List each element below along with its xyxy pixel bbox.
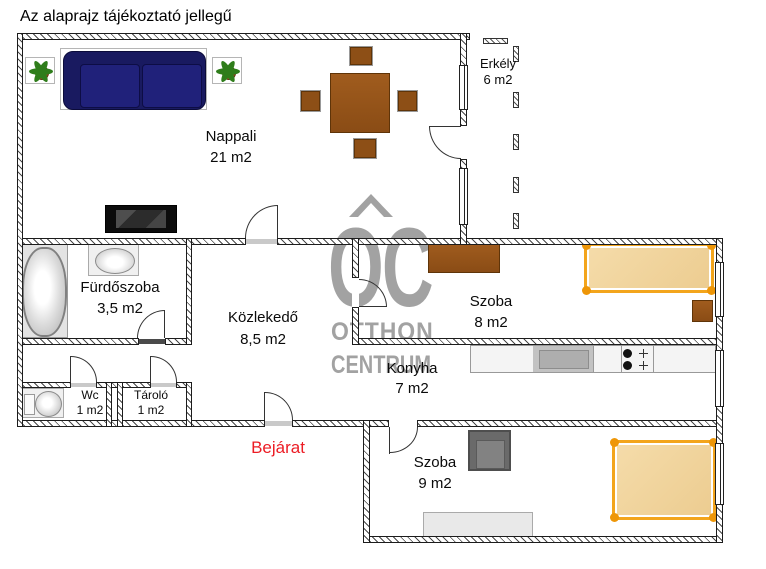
room-area: 1 m2 bbox=[121, 403, 181, 418]
door-arc bbox=[245, 205, 278, 238]
door-threshold bbox=[265, 421, 292, 426]
room-name: Tároló bbox=[121, 388, 181, 403]
door-arc bbox=[429, 126, 461, 159]
wall-segment bbox=[17, 33, 23, 427]
tv bbox=[105, 205, 177, 233]
toilet-tank bbox=[24, 394, 35, 415]
door-arc bbox=[151, 356, 177, 382]
sofa bbox=[60, 48, 207, 110]
wall-segment bbox=[363, 536, 723, 543]
window bbox=[715, 262, 724, 317]
door-threshold bbox=[246, 239, 277, 244]
kitchen-counter bbox=[470, 345, 716, 373]
room-area: 9 m2 bbox=[375, 473, 495, 494]
plan-disclaimer-title: Az alaprajz tájékoztató jellegű bbox=[20, 8, 232, 26]
stove-burner-icon bbox=[639, 361, 648, 370]
door-leaf bbox=[264, 392, 265, 420]
floor-plan: Az alaprajz tájékoztató jellegű OC OTTHO… bbox=[0, 0, 766, 569]
stove-burner bbox=[623, 349, 632, 358]
room-label-szoba-8: Szoba 8 m2 bbox=[431, 291, 551, 333]
room-name: Közlekedő bbox=[203, 307, 323, 329]
window bbox=[715, 443, 724, 505]
stove-burner bbox=[623, 361, 632, 370]
wall-segment bbox=[186, 238, 192, 345]
kitchen-sink bbox=[533, 346, 593, 372]
wall-segment bbox=[363, 420, 370, 543]
room-name: Wc bbox=[60, 388, 120, 403]
counter-divider bbox=[593, 346, 594, 372]
door-arc bbox=[265, 392, 293, 420]
sofa-cushion bbox=[80, 64, 140, 108]
room-name: Fürdőszoba bbox=[60, 277, 180, 298]
door-leaf bbox=[277, 205, 278, 238]
stove-burner-icon bbox=[639, 349, 648, 358]
room-label-erkely: Erkély 6 m2 bbox=[438, 56, 558, 88]
chair bbox=[353, 138, 377, 159]
room-label-tarolo: Tároló 1 m2 bbox=[121, 388, 181, 418]
bed-corner bbox=[582, 286, 591, 295]
window bbox=[459, 168, 468, 225]
room-label-konyha: Konyha 7 m2 bbox=[352, 359, 472, 399]
wall-segment bbox=[186, 382, 192, 427]
door-opening bbox=[388, 420, 418, 427]
room-label-szoba-9: Szoba 9 m2 bbox=[375, 452, 495, 494]
window bbox=[715, 350, 724, 407]
chair bbox=[397, 90, 418, 112]
room-area: 1 m2 bbox=[60, 403, 120, 418]
washbasin-bowl bbox=[95, 248, 135, 274]
room-area: 8 m2 bbox=[431, 312, 551, 333]
entrance-label: Bejárat bbox=[218, 437, 338, 458]
dining-table bbox=[330, 73, 390, 133]
door-threshold bbox=[139, 339, 165, 344]
toilet-bowl bbox=[35, 391, 62, 417]
sofa-body bbox=[63, 51, 206, 110]
sideboard bbox=[423, 512, 533, 538]
door-threshold bbox=[151, 383, 176, 387]
tv-screen bbox=[116, 210, 166, 228]
room-name: Szoba bbox=[375, 452, 495, 473]
door-threshold bbox=[71, 383, 96, 387]
nightstand bbox=[692, 300, 713, 322]
room-label-nappali: Nappali 21 m2 bbox=[171, 126, 291, 168]
dresser bbox=[428, 243, 500, 273]
wall-segment bbox=[17, 33, 470, 40]
bed bbox=[584, 243, 714, 293]
room-area: 7 m2 bbox=[352, 379, 472, 399]
washbasin bbox=[88, 242, 139, 276]
counter-divider bbox=[621, 346, 622, 372]
door-leaf bbox=[429, 126, 461, 127]
room-label-furdoszoba: Fürdőszoba 3,5 m2 bbox=[60, 277, 180, 319]
watermark-monogram: OC bbox=[328, 212, 432, 324]
chair bbox=[300, 90, 321, 112]
bed-corner bbox=[610, 513, 619, 522]
chair bbox=[349, 46, 373, 66]
door-leaf bbox=[70, 356, 71, 382]
wall-segment bbox=[352, 338, 723, 345]
toilet bbox=[20, 388, 64, 418]
door-leaf bbox=[359, 306, 387, 307]
door-arc bbox=[390, 427, 418, 453]
door-leaf bbox=[389, 427, 390, 454]
potted-plant bbox=[25, 57, 55, 84]
room-name: Erkély bbox=[438, 56, 558, 72]
balcony-railing bbox=[483, 38, 508, 44]
balcony-railing bbox=[513, 92, 519, 108]
balcony-railing bbox=[513, 177, 519, 193]
room-name: Konyha bbox=[352, 359, 472, 379]
room-area: 8,5 m2 bbox=[203, 329, 323, 351]
room-area: 3,5 m2 bbox=[60, 298, 180, 319]
wall-segment bbox=[17, 238, 723, 245]
room-area: 6 m2 bbox=[438, 72, 558, 88]
sofa-cushion bbox=[142, 64, 202, 108]
bed-corner bbox=[610, 438, 619, 447]
potted-plant bbox=[212, 57, 242, 84]
kitchen-sink-basin bbox=[539, 350, 589, 369]
balcony-railing bbox=[513, 213, 519, 229]
door-opening bbox=[460, 125, 467, 160]
balcony-railing bbox=[513, 134, 519, 150]
door-arc bbox=[71, 356, 97, 382]
counter-divider bbox=[653, 346, 654, 372]
room-name: Nappali bbox=[171, 126, 291, 147]
door-leaf bbox=[150, 356, 151, 382]
bed bbox=[612, 440, 716, 520]
room-area: 21 m2 bbox=[171, 147, 291, 168]
room-label-kozlekedo: Közlekedő 8,5 m2 bbox=[203, 307, 323, 351]
room-label-wc: Wc 1 m2 bbox=[60, 388, 120, 418]
room-name: Szoba bbox=[431, 291, 551, 312]
door-opening bbox=[352, 277, 359, 308]
